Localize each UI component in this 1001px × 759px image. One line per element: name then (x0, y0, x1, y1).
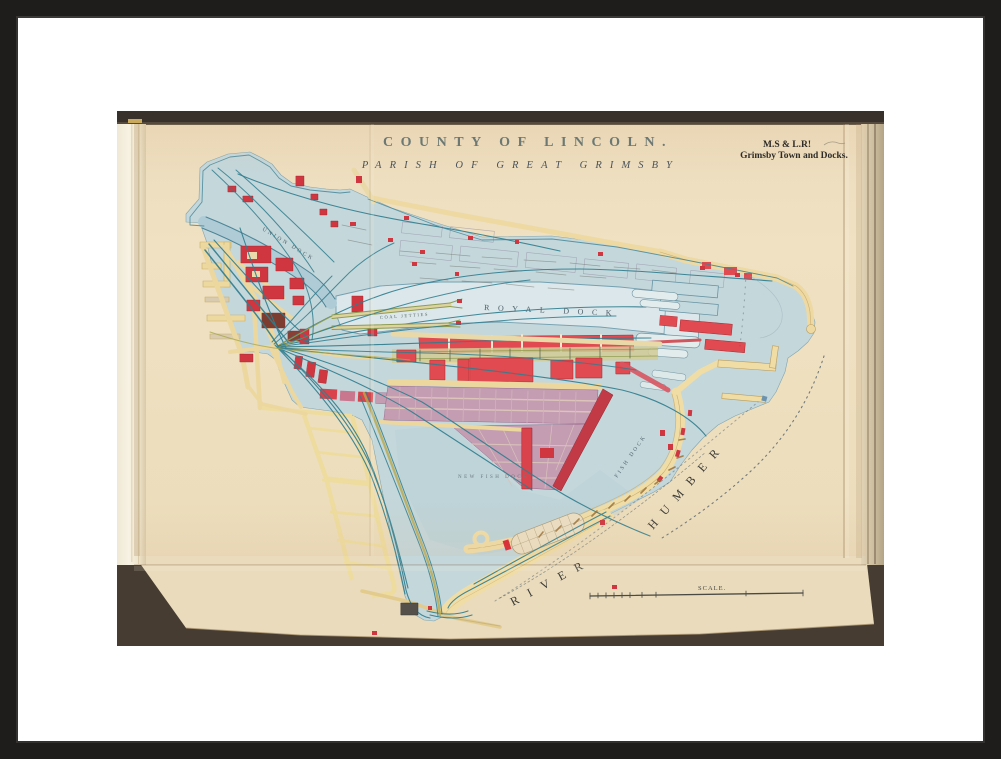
svg-text:M.S & L.R!: M.S & L.R! (763, 140, 811, 150)
svg-text:Grimsby Town and Docks.: Grimsby Town and Docks. (740, 151, 848, 161)
svg-text:NEW FISH DOCK: NEW FISH DOCK (458, 475, 529, 480)
svg-text:PARISH OF GREAT GRIMSBY: PARISH OF GREAT GRIMSBY (361, 160, 680, 171)
svg-text:SCALE.: SCALE. (698, 585, 726, 592)
svg-text:COUNTY OF LINCOLN.: COUNTY OF LINCOLN. (383, 135, 673, 150)
